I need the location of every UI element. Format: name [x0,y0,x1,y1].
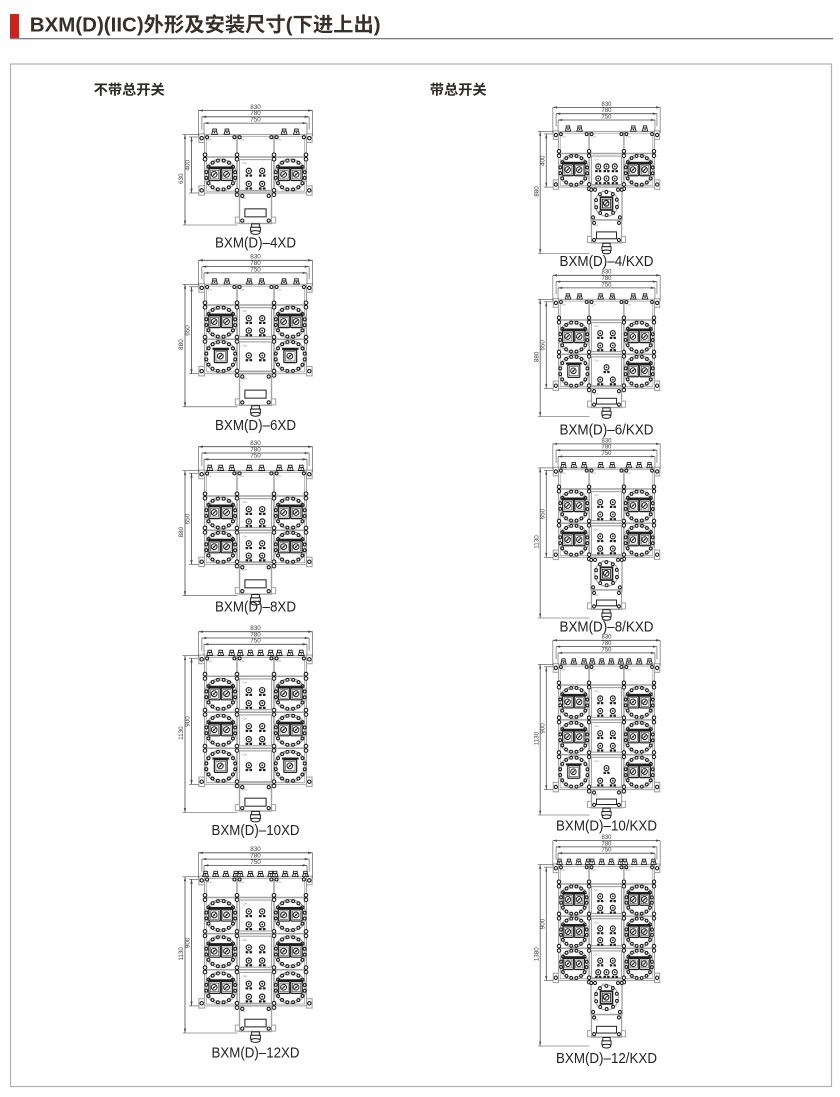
svg-text:Cm: Cm [594,689,599,693]
svg-text:Exd: Exd [284,341,290,345]
svg-text:Exd: Exd [215,750,221,754]
svg-text:Cm: Cm [243,534,248,538]
svg-text:Exd: Exd [568,356,573,360]
svg-text:650: 650 [540,508,547,519]
svg-text:Exd: Exd [568,491,573,495]
svg-text:900: 900 [540,918,547,929]
svg-text:Cm: Cm [243,902,248,906]
svg-text:Exd: Exd [633,722,638,726]
svg-text:Exd: Exd [602,559,607,563]
svg-text:Exd: Exd [284,972,290,976]
svg-text:Cm: Cm [594,158,599,162]
svg-text:Exd: Exd [633,950,638,954]
svg-text:1380: 1380 [533,947,540,962]
svg-text:Cm: Cm [594,324,599,328]
svg-text:BXM(D)–12XD: BXM(D)–12XD [212,1046,300,1062]
svg-text:Exd: Exd [215,307,221,311]
svg-text:Exd: Exd [215,498,221,502]
svg-text:Cm: Cm [243,938,248,942]
svg-text:Exd: Exd [568,950,573,954]
svg-text:BXM(D)–4XD: BXM(D)–4XD [215,236,296,252]
svg-text:630: 630 [178,173,185,184]
svg-text:750: 750 [602,281,612,288]
svg-text:900: 900 [185,716,192,727]
svg-text:Exd: Exd [568,525,573,529]
svg-text:880: 880 [533,186,540,197]
svg-text:750: 750 [250,859,261,866]
svg-text:Exd: Exd [284,900,290,904]
svg-text:Cm: Cm [243,309,248,313]
svg-text:Cm: Cm [243,974,248,978]
svg-text:750: 750 [602,450,612,457]
svg-text:Exd: Exd [568,886,573,890]
svg-text:750: 750 [250,453,261,460]
svg-text:Cm: Cm [594,920,599,924]
svg-text:BXM(D)–12/KXD: BXM(D)–12/KXD [556,1051,657,1067]
svg-text:750: 750 [250,117,261,124]
svg-text:650: 650 [185,513,192,524]
svg-text:1130: 1130 [533,535,540,549]
svg-text:Exd: Exd [633,322,638,326]
svg-text:Cm: Cm [243,717,248,721]
svg-text:750: 750 [250,266,261,273]
svg-text:Exd: Exd [568,722,573,726]
svg-text:Exd: Exd [633,687,638,691]
svg-text:Cm: Cm [594,888,599,892]
svg-text:900: 900 [540,723,547,734]
svg-text:Exd: Exd [568,155,573,159]
svg-text:1130: 1130 [178,726,185,740]
svg-text:BXM(D)(IIC): BXM(D)(IIC) [30,14,144,37]
svg-text:Exd: Exd [284,498,290,502]
svg-text:Exd: Exd [633,757,638,761]
svg-text:Exd: Exd [284,750,290,754]
svg-text:Exd: Exd [284,159,290,163]
svg-text:Cm: Cm [594,358,599,362]
svg-text:Cm: Cm [243,681,248,685]
svg-text:BXM(D)–6XD: BXM(D)–6XD [215,418,296,434]
svg-text:880: 880 [178,339,185,350]
svg-text:Exd: Exd [568,687,573,691]
svg-text:Exd: Exd [215,159,221,163]
svg-text:(: ( [286,14,293,37]
svg-text:Exd: Exd [215,900,221,904]
svg-text:Cm: Cm [594,724,599,728]
svg-text:Cm: Cm [243,500,248,504]
svg-text:Exd: Exd [602,982,607,986]
svg-text:Cm: Cm [594,952,599,956]
svg-text:Cm: Cm [594,527,599,531]
svg-text:Exd: Exd [284,714,290,718]
svg-text:Cm: Cm [243,161,248,165]
svg-text:Exd: Exd [284,307,290,311]
svg-text:880: 880 [178,526,185,537]
svg-text:Exd: Exd [215,972,221,976]
svg-text:Exd: Exd [284,532,290,536]
svg-text:): ) [374,14,381,37]
svg-text:880: 880 [533,351,540,362]
svg-text:Exd: Exd [215,714,221,718]
svg-text:BXM(D)–10/KXD: BXM(D)–10/KXD [556,819,657,835]
svg-text:Exd: Exd [633,155,638,159]
svg-text:Exd: Exd [284,678,290,682]
svg-text:Exd: Exd [633,491,638,495]
svg-text:750: 750 [602,846,612,853]
svg-text:Exd: Exd [568,918,573,922]
svg-text:BXM(D)–10XD: BXM(D)–10XD [212,823,300,839]
svg-text:Exd: Exd [633,886,638,890]
svg-text:Exd: Exd [215,936,221,940]
svg-text:Exd: Exd [568,757,573,761]
svg-text:900: 900 [185,937,192,948]
svg-text:Exd: Exd [215,532,221,536]
svg-text:400: 400 [185,160,192,171]
svg-text:Exd: Exd [568,322,573,326]
svg-text:Exd: Exd [633,525,638,529]
svg-text:Exd: Exd [215,341,221,345]
svg-text:Cm: Cm [594,759,599,763]
svg-text:Exd: Exd [633,918,638,922]
svg-text:Exd: Exd [602,189,607,193]
svg-text:Cm: Cm [243,753,248,757]
svg-text:750: 750 [602,646,612,653]
svg-text:BXM(D)–6/KXD: BXM(D)–6/KXD [560,423,654,439]
svg-text:Exd: Exd [215,678,221,682]
svg-text:650: 650 [185,325,192,336]
svg-text:BXM(D)–8XD: BXM(D)–8XD [215,600,296,616]
svg-text:750: 750 [602,113,612,120]
svg-text:Cm: Cm [243,344,248,348]
svg-text:Exd: Exd [284,936,290,940]
svg-text:650: 650 [540,339,547,350]
svg-text:400: 400 [540,155,547,166]
svg-text:750: 750 [250,638,261,645]
svg-text:Cm: Cm [594,493,599,497]
svg-text:Exd: Exd [633,356,638,360]
